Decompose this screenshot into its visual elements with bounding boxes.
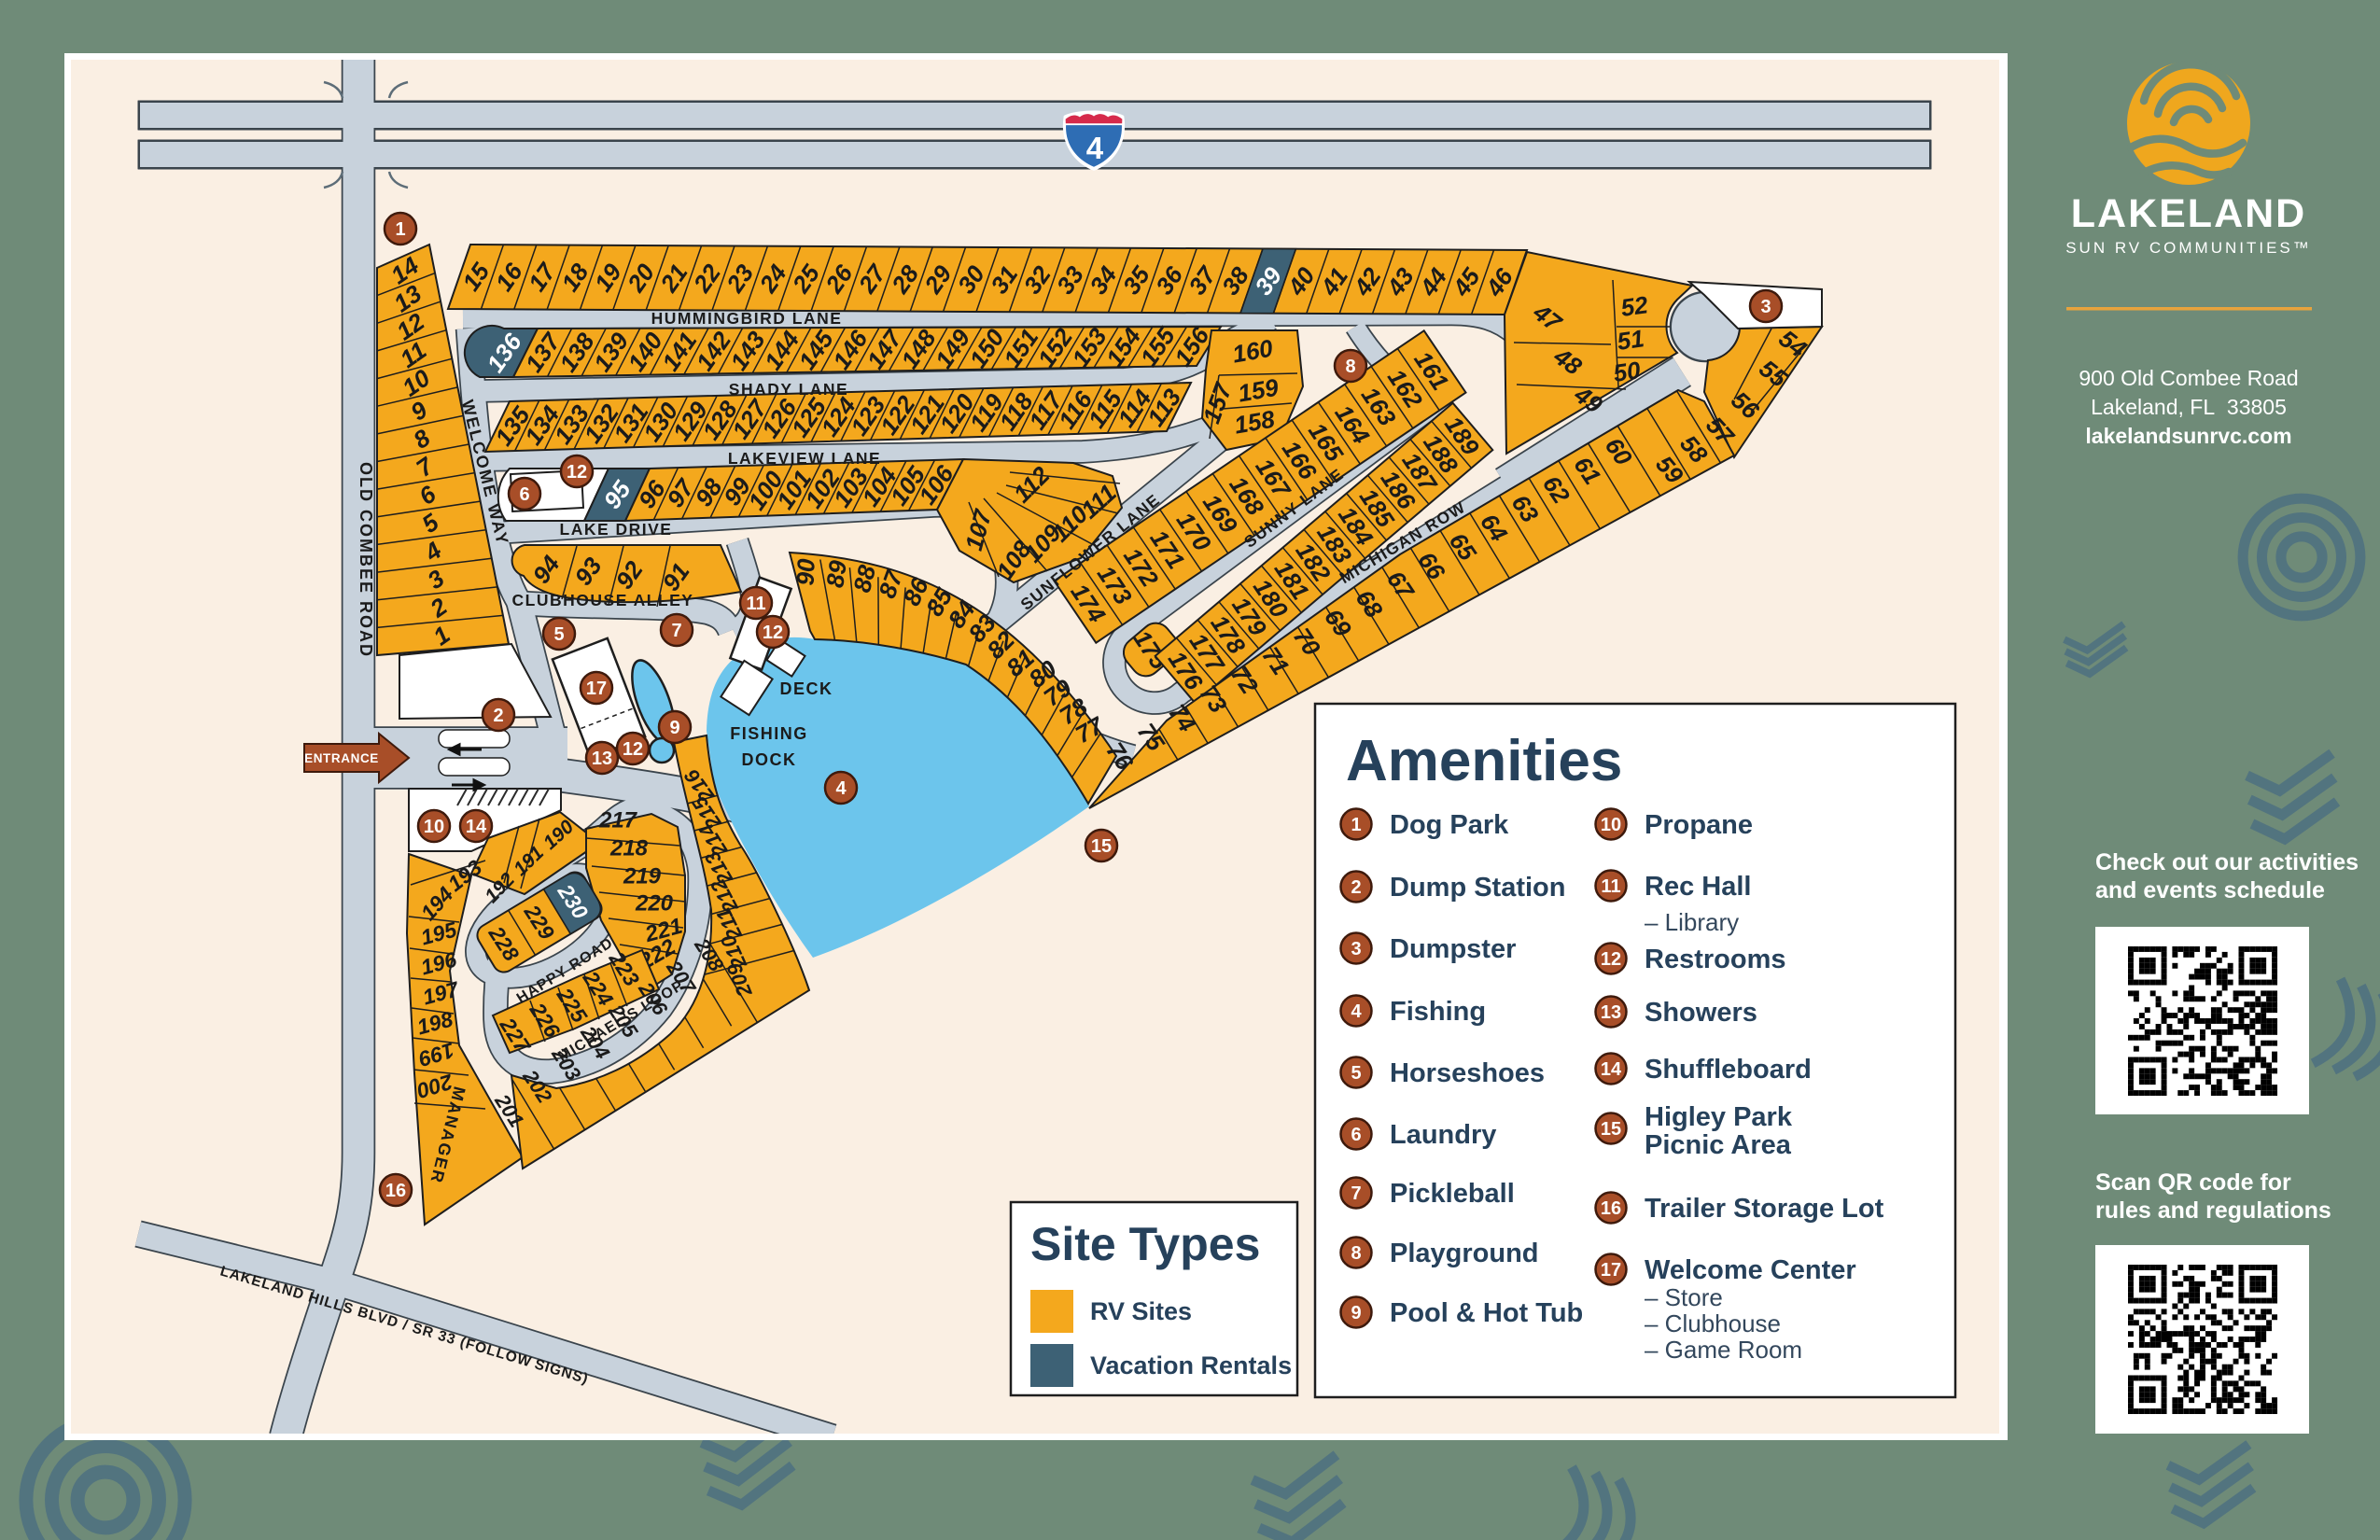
svg-text:rules and regulations: rules and regulations [2095, 1197, 2331, 1224]
svg-text:Horseshoes: Horseshoes [1390, 1058, 1545, 1088]
svg-text:4: 4 [1086, 132, 1104, 166]
svg-text:50: 50 [1612, 356, 1643, 387]
svg-text:Showers: Showers [1645, 998, 1757, 1028]
svg-text:12: 12 [623, 739, 643, 760]
svg-text:LAKELAND: LAKELAND [2071, 191, 2306, 236]
svg-text:9: 9 [669, 718, 679, 738]
svg-text:RV Sites: RV Sites [1090, 1297, 1192, 1325]
svg-text:90: 90 [791, 557, 820, 585]
svg-text:89: 89 [820, 558, 852, 589]
svg-text:OLD COMBEE ROAD: OLD COMBEE ROAD [357, 462, 375, 658]
svg-text:4: 4 [1351, 1001, 1362, 1022]
svg-text:and events schedule: and events schedule [2095, 877, 2325, 903]
svg-text:1: 1 [395, 219, 405, 240]
svg-text:Shuffleboard: Shuffleboard [1645, 1055, 1812, 1085]
svg-text:– Game Room: – Game Room [1645, 1336, 1802, 1364]
svg-text:Dump Station: Dump Station [1390, 873, 1566, 903]
svg-text:11: 11 [746, 594, 765, 614]
svg-text:– Clubhouse: – Clubhouse [1645, 1309, 1781, 1337]
svg-text:Vacation Rentals: Vacation Rentals [1090, 1351, 1292, 1379]
svg-text:HUMMINGBIRD LANE: HUMMINGBIRD LANE [651, 309, 843, 328]
svg-text:Restrooms: Restrooms [1645, 945, 1786, 974]
svg-text:17: 17 [586, 679, 607, 699]
svg-text:2: 2 [493, 706, 503, 726]
svg-text:12: 12 [567, 462, 587, 483]
svg-text:4: 4 [835, 778, 847, 799]
svg-text:3: 3 [1351, 939, 1361, 959]
svg-text:220: 220 [635, 890, 674, 916]
svg-text:16: 16 [385, 1181, 406, 1201]
svg-text:52: 52 [1619, 290, 1650, 322]
svg-text:Pool & Hot Tub: Pool & Hot Tub [1390, 1298, 1583, 1328]
svg-text:Higley Park: Higley Park [1645, 1102, 1793, 1132]
svg-text:Picnic Area: Picnic Area [1645, 1130, 1792, 1160]
svg-text:5: 5 [553, 624, 564, 645]
svg-text:15: 15 [1091, 836, 1112, 857]
svg-text:Dumpster: Dumpster [1390, 934, 1516, 964]
svg-text:15: 15 [1601, 1119, 1621, 1140]
svg-text:13: 13 [592, 749, 612, 769]
svg-text:2: 2 [1351, 877, 1361, 898]
svg-text:Pickleball: Pickleball [1390, 1179, 1515, 1209]
svg-text:LAKEVIEW LANE: LAKEVIEW LANE [728, 449, 881, 468]
svg-text:14: 14 [466, 817, 487, 837]
svg-text:Fishing: Fishing [1390, 997, 1486, 1027]
svg-text:9: 9 [1351, 1303, 1361, 1323]
svg-text:7: 7 [671, 621, 681, 641]
svg-text:12: 12 [763, 623, 783, 643]
svg-text:51: 51 [1616, 324, 1646, 356]
svg-text:FISHING: FISHING [730, 724, 808, 743]
svg-text:218: 218 [609, 835, 649, 861]
svg-text:LAKE DRIVE: LAKE DRIVE [560, 520, 673, 539]
svg-text:8: 8 [1351, 1243, 1361, 1264]
svg-text:Dog Park: Dog Park [1390, 810, 1509, 840]
svg-text:Welcome Center: Welcome Center [1645, 1255, 1856, 1285]
svg-text:Rec Hall: Rec Hall [1645, 872, 1751, 902]
svg-text:10: 10 [424, 817, 444, 837]
svg-text:DOCK: DOCK [742, 750, 797, 769]
svg-text:SUN RV COMMUNITIES™: SUN RV COMMUNITIES™ [2065, 239, 2312, 257]
svg-text:6: 6 [1351, 1125, 1361, 1145]
svg-text:– Library: – Library [1645, 908, 1739, 936]
svg-text:1: 1 [1351, 815, 1361, 835]
svg-text:CLUBHOUSE ALLEY: CLUBHOUSE ALLEY [512, 591, 694, 609]
svg-text:13: 13 [1601, 1002, 1621, 1023]
svg-text:DECK: DECK [779, 679, 833, 698]
svg-text:ENTRANCE: ENTRANCE [304, 751, 379, 765]
svg-text:Amenities: Amenities [1346, 729, 1622, 793]
svg-text:Scan QR code for: Scan QR code for [2095, 1169, 2291, 1196]
svg-text:– Store: – Store [1645, 1283, 1723, 1311]
svg-text:12: 12 [1601, 949, 1621, 970]
svg-text:900 Old Combee Road: 900 Old Combee Road [2079, 366, 2298, 390]
svg-text:Site Types: Site Types [1030, 1218, 1260, 1270]
svg-text:8: 8 [1345, 357, 1355, 377]
svg-text:217: 217 [598, 807, 638, 833]
svg-text:6: 6 [519, 484, 529, 505]
svg-text:Propane: Propane [1645, 810, 1753, 840]
svg-text:SHADY LANE: SHADY LANE [729, 380, 848, 399]
svg-text:14: 14 [1601, 1059, 1622, 1080]
svg-text:5: 5 [1351, 1063, 1361, 1084]
svg-text:Lakeland, FL 33805: Lakeland, FL 33805 [2091, 395, 2287, 419]
svg-text:10: 10 [1601, 815, 1621, 835]
svg-text:11: 11 [1601, 876, 1620, 897]
svg-text:3: 3 [1760, 297, 1771, 317]
svg-text:Trailer Storage Lot: Trailer Storage Lot [1645, 1194, 1884, 1224]
svg-text:lakelandsunrvc.com: lakelandsunrvc.com [2085, 424, 2291, 448]
svg-text:219: 219 [623, 863, 662, 889]
svg-text:7: 7 [1351, 1183, 1361, 1204]
svg-text:Check out our activities: Check out our activities [2095, 849, 2359, 875]
svg-text:17: 17 [1601, 1260, 1621, 1281]
svg-text:Playground: Playground [1390, 1239, 1539, 1268]
svg-text:16: 16 [1601, 1198, 1621, 1219]
svg-text:Laundry: Laundry [1390, 1120, 1496, 1150]
